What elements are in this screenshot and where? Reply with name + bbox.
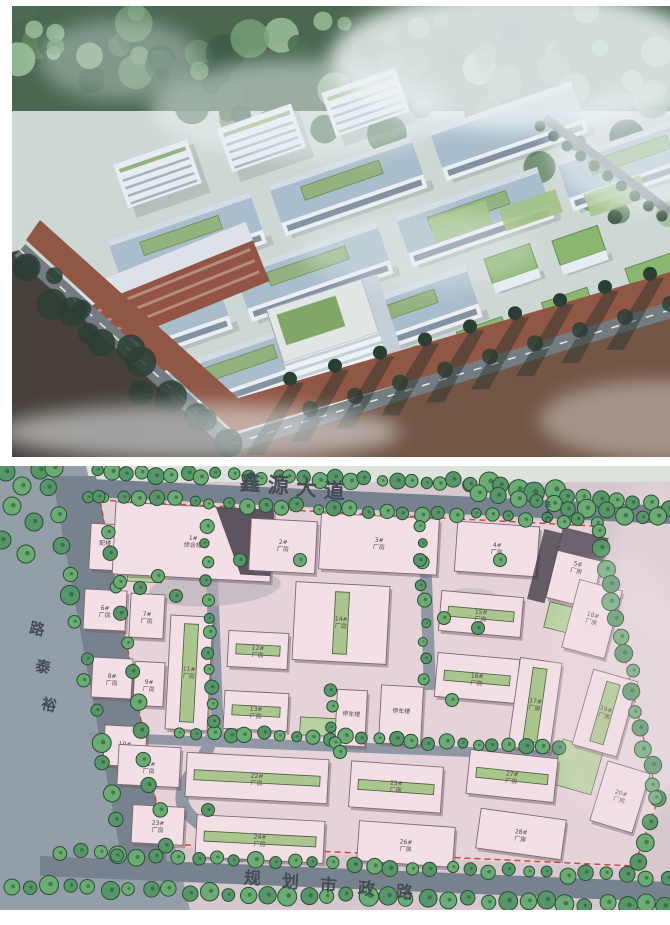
aerial-rendering-photo [12,6,670,457]
aerial-rendering-canvas [12,6,670,457]
site-plan-photo: 配楼1#综合楼2#厂房3#厂房4#厂房5#厂房6#厂房7#厂房8#厂房9#厂房1… [0,466,670,910]
plan-haze [0,466,670,910]
mist [12,6,670,457]
site-plan-canvas: 配楼1#综合楼2#厂房3#厂房4#厂房5#厂房6#厂房7#厂房8#厂房9#厂房1… [0,466,670,910]
